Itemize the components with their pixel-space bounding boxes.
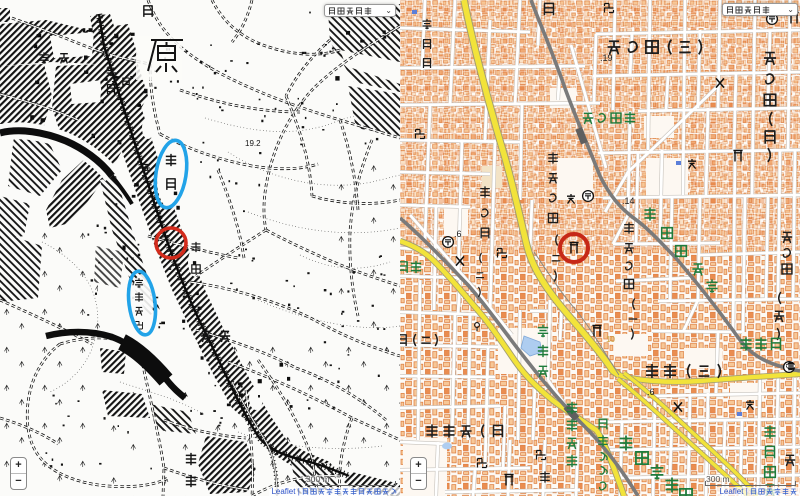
svg-text:10: 10: [606, 335, 615, 344]
svg-text:.6: .6: [647, 387, 655, 397]
svg-text:19.2: 19.2: [245, 139, 261, 148]
svg-text:.14: .14: [622, 196, 635, 206]
svg-text:.19: .19: [600, 53, 613, 63]
svg-text:.6: .6: [454, 229, 462, 239]
